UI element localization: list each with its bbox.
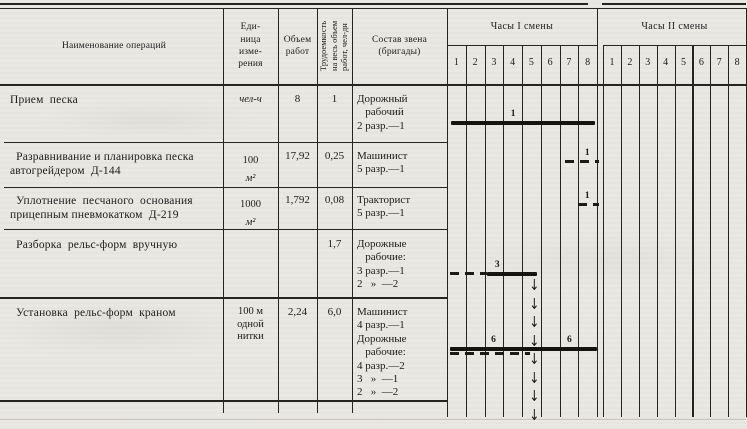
flow-arrow-icon: ↓: [529, 333, 539, 348]
flow-arrow-icon: ↓: [529, 407, 539, 422]
flow-arrow-icon: ↓: [529, 389, 539, 404]
unit-symbol: м²: [246, 217, 256, 228]
op-unit: чел-ч: [223, 94, 278, 107]
op-name: Разборка рельс-форм вручную: [10, 238, 222, 252]
op-crew: Машинист 4 разр.—1 Дорожные рабочие: 4 р…: [357, 306, 445, 400]
op-name: Установка рельс-форм краном: [10, 306, 222, 320]
op-volume: 2,24: [278, 306, 317, 318]
col-header-unit: Еди- ница изме- рения: [223, 8, 278, 84]
op-unit: 1000м²: [223, 194, 278, 230]
grid-line-vertical: [503, 45, 504, 417]
unit-value: 1000: [240, 199, 261, 210]
gantt-bar: [450, 352, 530, 355]
hour-label: 2: [466, 57, 485, 68]
hour-label: 7: [710, 57, 728, 68]
flow-arrow-icon: ↓: [529, 296, 539, 311]
flow-arrow-icon: ↓: [529, 370, 539, 385]
gantt-bar-label: 1: [511, 109, 516, 119]
flow-arrow-icon: ↓: [529, 352, 539, 367]
col-header-crew: Состав звена (бригады): [352, 8, 447, 84]
hour-label: 3: [485, 57, 504, 68]
hour-label: 5: [522, 57, 541, 68]
grid-line-vertical: [223, 8, 224, 413]
grid-line-vertical: [352, 8, 353, 413]
op-name: Прием песка: [10, 93, 220, 107]
op-volume: 1,792: [278, 194, 317, 206]
grid-line-vertical: [639, 45, 640, 417]
grid-line-vertical: [675, 45, 676, 417]
hour-label: 4: [657, 57, 675, 68]
grid-line-vertical: [522, 45, 523, 417]
op-unit: 100м²: [223, 150, 278, 186]
gantt-bar: [450, 272, 488, 275]
grid-line-vertical: [447, 8, 448, 417]
gantt-bar: [565, 160, 599, 163]
hour-label: 6: [541, 57, 560, 68]
grid-line-horizontal: [0, 419, 746, 420]
grid-line-vertical: [485, 45, 486, 417]
col-header-operations: Наименование операций: [5, 8, 223, 84]
flow-arrow-icon: ↓: [529, 315, 539, 330]
hour-label: 8: [578, 57, 597, 68]
grid-line-vertical: [317, 8, 318, 413]
grid-line-vertical: [621, 45, 622, 417]
op-labor: 0,25: [317, 150, 352, 162]
scanned-schedule-page: Наименование операций Еди- ница изме- ре…: [0, 0, 747, 429]
flow-arrow-icon: ↓: [529, 278, 539, 293]
op-volume: 8: [278, 93, 317, 105]
hour-label: 5: [675, 57, 693, 68]
op-crew: Тракторист 5 разр.—1: [357, 194, 445, 221]
col-header-volume: Объем работ: [278, 8, 317, 84]
op-crew: Дорожный рабочий 2 разр.—1: [357, 93, 445, 133]
col-header-shift1: Часы I смены: [447, 8, 597, 45]
grid-line-vertical: [692, 45, 693, 417]
hour-label: 8: [728, 57, 746, 68]
grid-line-horizontal: [0, 3, 588, 5]
op-name: Уплотнение песчаного основания прицепным…: [10, 194, 222, 222]
gantt-bar-label: 6: [567, 335, 572, 345]
grid-line-vertical: [603, 45, 604, 417]
gantt-bar-label: 6: [491, 335, 496, 345]
grid-line-vertical: [278, 8, 279, 413]
grid-line-horizontal: [4, 187, 447, 188]
op-crew: Машинист 5 разр.—1: [357, 150, 445, 177]
grid-line-vertical: [560, 45, 561, 417]
op-labor: 6,0: [317, 306, 352, 318]
col-header-shift2: Часы II смены: [603, 8, 746, 45]
op-labor: 0,08: [317, 194, 352, 206]
hour-label: 3: [639, 57, 657, 68]
grid-line-vertical: [728, 45, 729, 417]
unit-symbol: м²: [246, 173, 256, 184]
grid-line-horizontal: [4, 229, 447, 230]
grid-line-horizontal: [4, 142, 447, 143]
grid-line-horizontal: [0, 8, 746, 10]
grid-line-vertical: [541, 45, 542, 417]
hour-label: 7: [560, 57, 579, 68]
op-labor: 1: [317, 93, 352, 105]
gantt-bar: [450, 347, 597, 351]
hour-label: 1: [603, 57, 621, 68]
grid-line-vertical: [710, 45, 711, 417]
grid-line-vertical: [578, 45, 579, 417]
grid-line-horizontal: [602, 3, 746, 5]
op-crew: Дорожные рабочие: 3 разр.—1 2 » —2: [357, 238, 445, 292]
hour-label: 1: [447, 57, 466, 68]
grid-line-horizontal: [0, 84, 746, 86]
hour-label: 2: [621, 57, 639, 68]
op-labor: 1,7: [317, 238, 352, 250]
col-header-labor-text: Трудоемкость на весь объем работ, чел-дн: [319, 21, 351, 71]
gantt-bar-label: 1: [585, 191, 590, 201]
gantt-bar-label: 1: [585, 148, 590, 158]
grid-line-vertical: [597, 8, 598, 417]
grid-line-vertical: [657, 45, 658, 417]
gantt-bar: [578, 203, 599, 206]
gantt-bar: [451, 121, 595, 125]
op-volume: 17,92: [278, 150, 317, 162]
gantt-bar-label: 3: [495, 260, 500, 270]
unit-value: 100: [243, 155, 259, 166]
grid-line-vertical: [466, 45, 467, 417]
col-header-labor: Трудоемкость на весь объем работ, чел-дн: [317, 8, 352, 84]
op-unit: 100 м одной нитки: [223, 306, 278, 344]
hour-label: 4: [503, 57, 522, 68]
op-name: Разравнивание и планировка песка автогре…: [10, 150, 222, 178]
hour-label: 6: [692, 57, 710, 68]
